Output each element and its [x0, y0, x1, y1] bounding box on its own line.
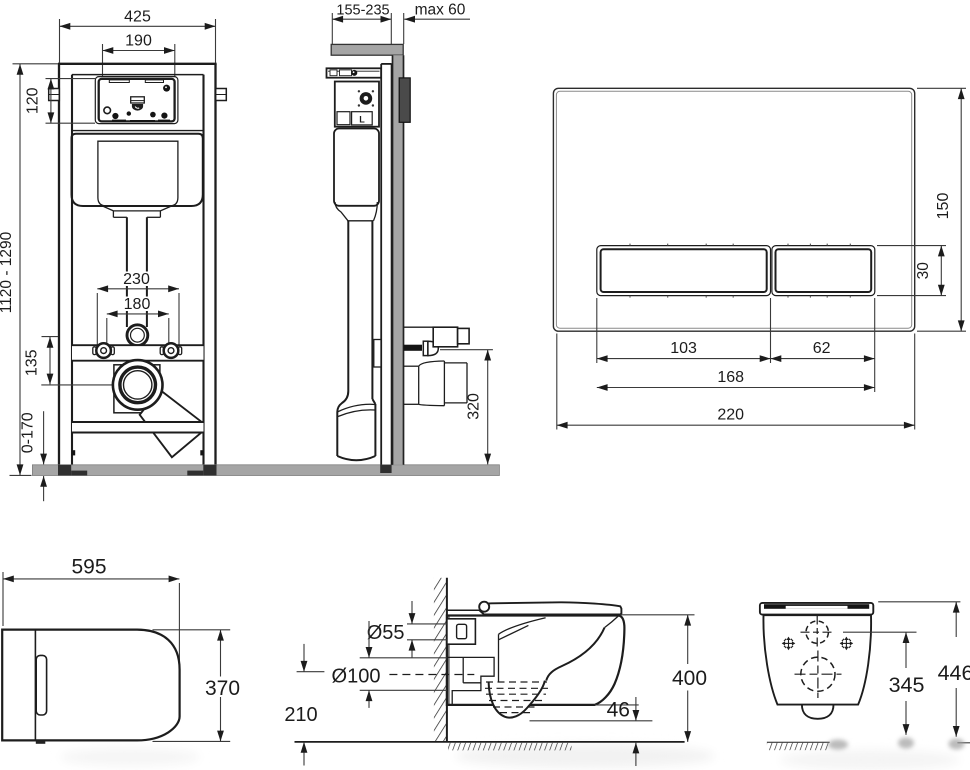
svg-text:425: 425 [124, 9, 151, 26]
svg-text:30: 30 [915, 262, 932, 280]
svg-text:135: 135 [24, 349, 41, 376]
svg-text:150: 150 [935, 193, 952, 220]
svg-text:L: L [359, 115, 365, 125]
svg-text:120: 120 [24, 87, 41, 114]
svg-text:370: 370 [205, 677, 240, 700]
svg-text:155-235: 155-235 [336, 3, 389, 19]
svg-text:Ø55: Ø55 [367, 622, 405, 644]
svg-text:180: 180 [124, 296, 151, 313]
svg-text:320: 320 [466, 393, 483, 420]
svg-text:345: 345 [889, 673, 925, 697]
svg-text:230: 230 [123, 271, 150, 288]
svg-text:46: 46 [607, 698, 630, 721]
svg-text:0-170: 0-170 [19, 412, 36, 453]
svg-text:1120 - 1290: 1120 - 1290 [0, 231, 15, 313]
svg-text:Ø100: Ø100 [332, 665, 381, 687]
svg-text:190: 190 [125, 33, 152, 50]
svg-text:210: 210 [284, 704, 317, 726]
svg-text:220: 220 [717, 407, 744, 424]
svg-text:446: 446 [938, 661, 970, 685]
svg-text:103: 103 [670, 340, 697, 357]
svg-text:400: 400 [672, 667, 707, 690]
svg-text:max 60: max 60 [415, 2, 466, 19]
svg-text:62: 62 [813, 340, 831, 357]
svg-text:168: 168 [717, 369, 744, 386]
svg-text:595: 595 [71, 556, 106, 579]
